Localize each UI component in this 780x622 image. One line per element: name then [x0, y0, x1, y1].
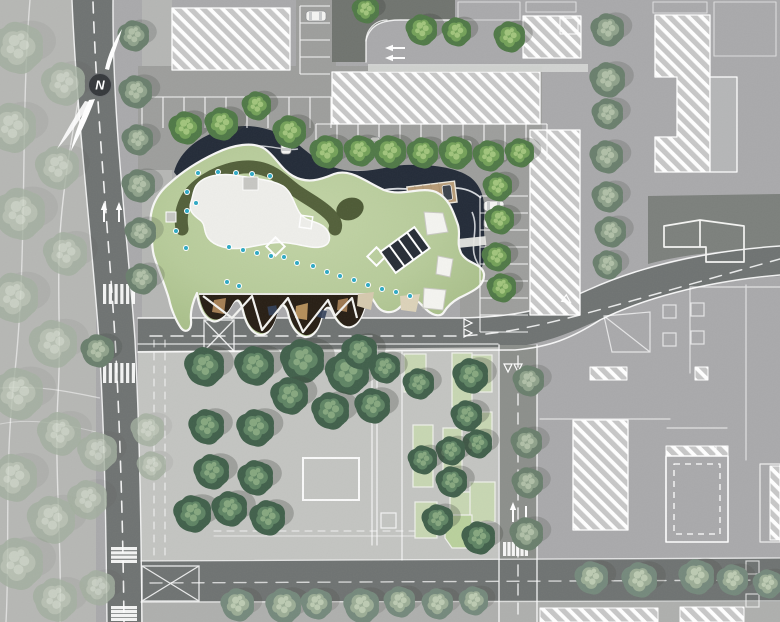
- site-plan-canvas: N: [0, 0, 780, 622]
- site-plan: N: [0, 0, 780, 622]
- paper-grain: [0, 0, 780, 622]
